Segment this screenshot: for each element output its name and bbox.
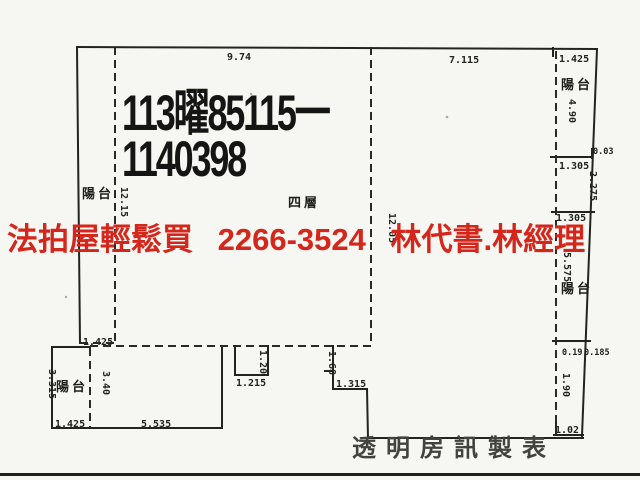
dim-notch-width: 1.315: [336, 379, 366, 390]
dim-tr-offset: 0.03: [593, 147, 613, 157]
scan-edge-line: [0, 473, 640, 476]
ad-slogan: 法拍屋輕鬆買: [7, 222, 193, 257]
dim-left-balcony-height: 12.15: [118, 187, 129, 217]
case-number-line2: 1140398: [122, 136, 329, 182]
dim-right-height-lower: 1.90: [560, 373, 571, 397]
dim-tr-balcony-width: 1.425: [559, 54, 589, 65]
scanned-floorplan-page: 9.74 7.115 1.425 4.90 0.03 1.305 2.275 1…: [0, 0, 640, 480]
footer-credit: 透明房訊製表: [352, 428, 556, 463]
dim-tab-height: 1.20: [257, 350, 268, 374]
room-label-balcony-top-left: 陽台: [82, 186, 114, 201]
ad-phone-number: 2266-3524: [218, 222, 366, 257]
dim-tab-width: 1.215: [236, 378, 266, 389]
dim-right-width-bottom: 1.02: [555, 425, 579, 436]
dim-top-width-left: 9.74: [227, 52, 251, 63]
dim-left-balcony-width: 1.425: [83, 337, 113, 348]
dim-right-step-b: 0.185: [584, 348, 610, 358]
dim-bl-width-main: 5.535: [141, 419, 171, 430]
case-number-line1: 113曜85115一: [122, 90, 329, 136]
dim-top-width-right: 7.115: [449, 55, 479, 66]
ad-overlay: 法拍屋輕鬆買 2266-3524 林代書.林經理: [7, 214, 640, 259]
room-label-balcony-right: 陽台: [561, 281, 593, 296]
room-label-floor: 四層: [288, 195, 320, 210]
dim-right-width-upper: 1.305: [559, 161, 589, 172]
dim-notch-height: 1.68: [326, 351, 337, 375]
case-number-stamp: 113曜85115一 1140398: [122, 90, 329, 182]
room-label-balcony-bottom-left: 陽台: [56, 379, 88, 394]
dim-tr-balcony-height: 4.90: [566, 99, 577, 123]
dim-right-height-upper: 2.275: [587, 171, 598, 201]
ad-agents: 林代書.林經理: [391, 222, 586, 257]
dim-bl-height-inner: 3.40: [100, 371, 111, 395]
dim-right-step-a: 0.19: [562, 348, 582, 358]
dim-bl-width-balcony: 1.425: [55, 419, 85, 430]
room-label-balcony-top-right: 陽台: [561, 77, 593, 92]
